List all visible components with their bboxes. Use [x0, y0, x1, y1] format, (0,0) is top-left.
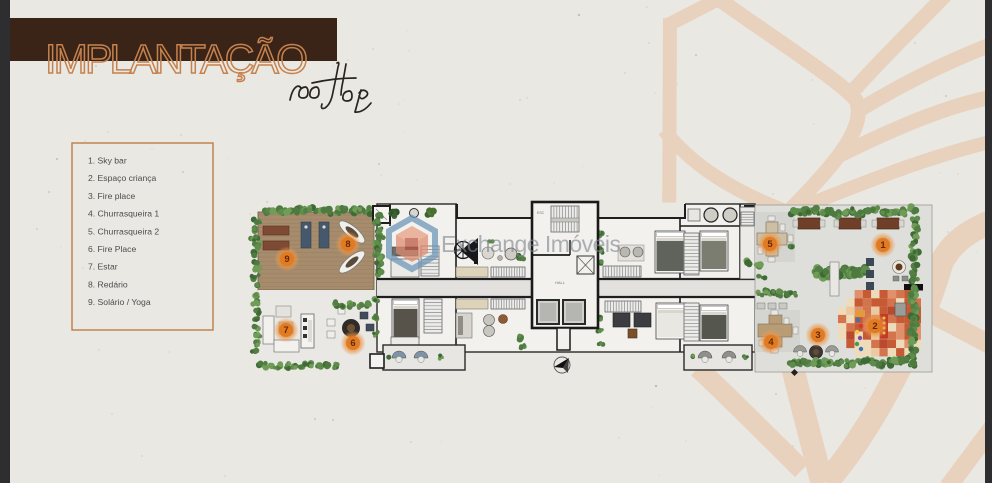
svg-text:2. Espaço criança: 2. Espaço criança — [88, 173, 157, 183]
svg-text:9: 9 — [284, 254, 289, 265]
svg-text:HALL: HALL — [555, 280, 566, 285]
svg-text:IMPLANTAÇÃO: IMPLANTAÇÃO — [45, 36, 317, 82]
svg-text:1: 1 — [880, 240, 886, 251]
svg-text:2: 2 — [872, 321, 877, 332]
svg-text:5: 5 — [767, 239, 773, 250]
svg-text:1. Sky bar: 1. Sky bar — [88, 156, 127, 166]
svg-text:4. Churrasqueira 1: 4. Churrasqueira 1 — [88, 209, 159, 219]
svg-text:5. Churrasqueira 2: 5. Churrasqueira 2 — [88, 226, 159, 236]
svg-text:ESC: ESC — [537, 211, 545, 215]
svg-text:7. Estar: 7. Estar — [88, 262, 118, 272]
svg-text:8: 8 — [345, 239, 350, 250]
svg-text:6. Fire Place: 6. Fire Place — [88, 244, 136, 254]
svg-text:3: 3 — [815, 330, 820, 341]
svg-text:7: 7 — [283, 325, 288, 336]
svg-text:6: 6 — [350, 338, 355, 349]
svg-text:Exchange Imóveis: Exchange Imóveis — [441, 231, 621, 257]
svg-text:8. Redário: 8. Redário — [88, 279, 128, 289]
svg-text:4: 4 — [768, 337, 774, 348]
svg-text:9. Solário / Yoga: 9. Solário / Yoga — [88, 297, 151, 307]
svg-text:3. Fire place: 3. Fire place — [88, 191, 136, 201]
